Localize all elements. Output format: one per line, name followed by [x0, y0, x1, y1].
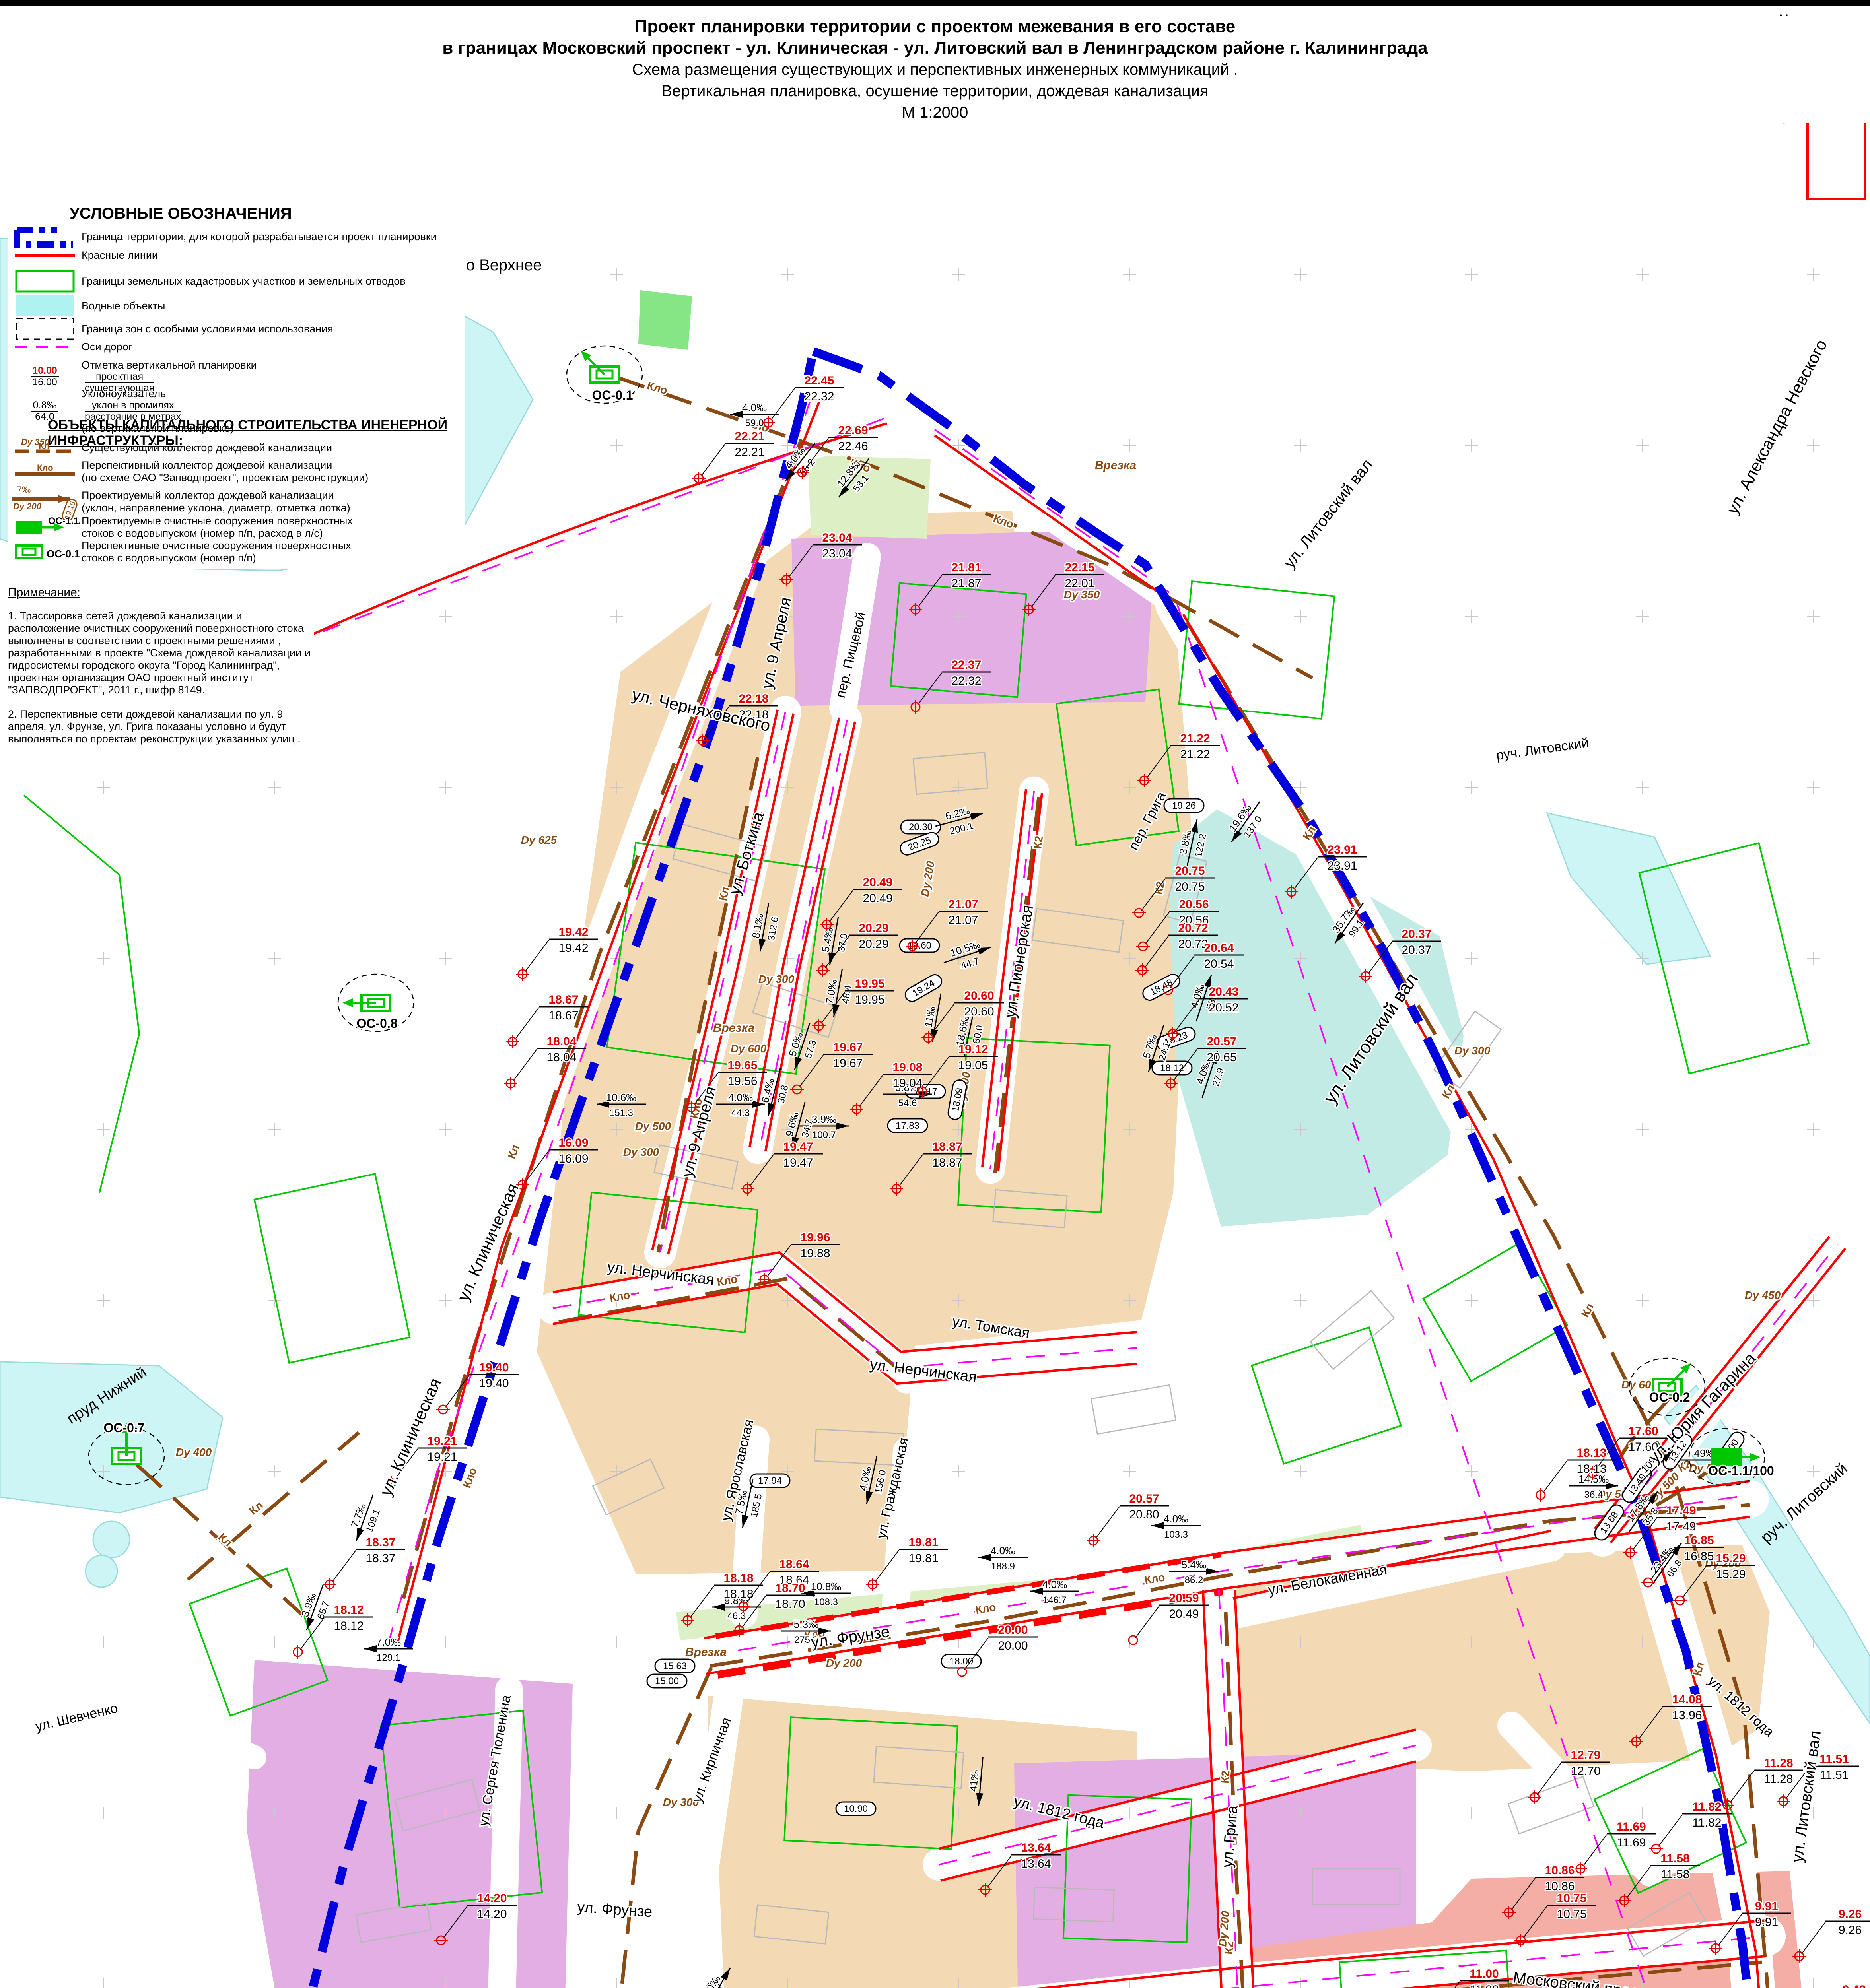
- svg-text:19.42: 19.42: [558, 926, 588, 939]
- svg-text:18.37: 18.37: [365, 1552, 395, 1565]
- svg-text:11.51: 11.51: [1819, 1753, 1849, 1766]
- svg-text:11.69: 11.69: [1617, 1836, 1646, 1849]
- pipe-diameter-label: Dy 300: [1454, 1044, 1491, 1057]
- svg-text:19.26: 19.26: [1172, 800, 1196, 811]
- grid-cross: [610, 439, 623, 452]
- notes-panel: Примечание: 1. Трассировка сетей дождево…: [8, 586, 314, 757]
- title-line-1: Проект планировки территории с проектом …: [0, 16, 1870, 37]
- svg-text:11.82: 11.82: [1692, 1800, 1721, 1813]
- svg-text:13.96: 13.96: [1672, 1709, 1702, 1722]
- svg-text:19.08: 19.08: [892, 1061, 922, 1074]
- svg-text:18.18: 18.18: [723, 1588, 753, 1601]
- perspective-collector-icon: Кло: [8, 464, 82, 479]
- svg-text:22.37: 22.37: [951, 658, 981, 672]
- svg-text:21.22: 21.22: [1180, 732, 1210, 745]
- svg-text:20.57: 20.57: [1207, 1035, 1236, 1048]
- svg-text:17.49: 17.49: [1666, 1520, 1696, 1533]
- svg-text:Dy 200: Dy 200: [13, 501, 42, 511]
- svg-text:41‰: 41‰: [967, 1769, 981, 1792]
- grid-cross: [1123, 268, 1136, 281]
- svg-text:20.29: 20.29: [859, 922, 888, 935]
- grid-cross: [1807, 781, 1820, 794]
- svg-text:21.07: 21.07: [948, 898, 978, 911]
- legend-item-label: Красные линии: [82, 249, 158, 262]
- svg-text:19.21: 19.21: [427, 1435, 457, 1448]
- svg-text:18.13: 18.13: [1576, 1446, 1606, 1460]
- svg-text:11.58: 11.58: [1661, 1868, 1690, 1881]
- mark-top: 10.00: [31, 365, 59, 377]
- svg-text:18.67: 18.67: [548, 993, 578, 1006]
- cadastre-border-icon: [8, 268, 82, 294]
- svg-text:20.49: 20.49: [863, 892, 892, 905]
- grid-cross: [1465, 610, 1478, 623]
- svg-text:13.64: 13.64: [1021, 1857, 1051, 1870]
- svg-text:19.81: 19.81: [908, 1552, 938, 1565]
- lot-elevation-mark: 15.00: [647, 1674, 687, 1688]
- svg-text:11.00: 11.00: [1470, 1983, 1499, 1988]
- grid-cross: [439, 1636, 452, 1648]
- svg-text:20.60: 20.60: [964, 1005, 994, 1018]
- existing-collector-icon: Dy 350Кл: [8, 439, 82, 457]
- svg-text:11.28: 11.28: [1764, 1773, 1793, 1786]
- grid-cross: [1294, 610, 1307, 623]
- grid-cross: [1123, 1465, 1136, 1477]
- svg-text:11.69: 11.69: [1617, 1820, 1646, 1833]
- grid-cross: [1465, 1294, 1478, 1307]
- svg-text:19.47: 19.47: [783, 1140, 813, 1153]
- street-name-label: ул. Фрунзе: [577, 1899, 653, 1920]
- svg-text:18.18: 18.18: [723, 1572, 753, 1585]
- title-line-4: Вертикальная планировка, осушение террит…: [0, 80, 1870, 102]
- pipe-diameter-label: Dy 300: [623, 1146, 659, 1158]
- grid-cross: [1636, 1123, 1649, 1136]
- grid-cross: [1123, 439, 1136, 452]
- svg-text:11.00: 11.00: [1470, 1967, 1499, 1980]
- legend-item-label: Отметка вертикальной планировки: [82, 359, 257, 371]
- sheet-header: Проект планировки территории с проектом …: [0, 16, 1870, 123]
- svg-text:20.72: 20.72: [1178, 938, 1208, 951]
- grid-cross: [1807, 1978, 1820, 1988]
- svg-text:22.01: 22.01: [1065, 577, 1094, 590]
- svg-text:20.59: 20.59: [1169, 1592, 1199, 1605]
- grid-cross: [439, 1294, 452, 1307]
- svg-text:4.0‰: 4.0‰: [991, 1545, 1015, 1557]
- grid-cross: [97, 1123, 110, 1136]
- grid-cross: [1636, 268, 1649, 281]
- street-name-label: ул. Литовский вал: [1788, 1730, 1824, 1864]
- mark-bottom: 16.00: [32, 377, 57, 388]
- grid-cross: [268, 781, 281, 794]
- svg-text:11.28: 11.28: [1764, 1757, 1793, 1770]
- svg-text:19.81: 19.81: [908, 1536, 938, 1549]
- grid-cross: [268, 1123, 281, 1136]
- pipe-diameter-label: Dy 200: [826, 1657, 862, 1669]
- svg-text:18.37: 18.37: [365, 1536, 395, 1549]
- svg-text:19.67: 19.67: [833, 1057, 863, 1070]
- svg-text:4.0‰: 4.0‰: [1164, 1513, 1188, 1525]
- svg-text:10.75: 10.75: [1557, 1908, 1586, 1921]
- svg-text:18.04: 18.04: [546, 1035, 576, 1048]
- svg-text:20.57: 20.57: [1129, 1492, 1159, 1505]
- svg-text:19.67: 19.67: [833, 1041, 863, 1054]
- treatment-facility-label: ОС-0.1: [592, 388, 633, 402]
- legend-header: УСЛОВНЫЕ ОБОЗНАЧЕНИЯ: [70, 205, 292, 223]
- svg-text:9.91: 9.91: [1755, 1900, 1778, 1913]
- svg-text:18.67: 18.67: [548, 1009, 578, 1022]
- infra-item-label: Проектируемые очистные сооружения поверх…: [82, 515, 353, 540]
- grid-cross: [97, 952, 110, 965]
- svg-text:18.87: 18.87: [932, 1156, 962, 1169]
- svg-text:7‰: 7‰: [17, 485, 31, 495]
- svg-text:5.4‰: 5.4‰: [1182, 1559, 1206, 1571]
- svg-text:20.43: 20.43: [1209, 985, 1238, 998]
- svg-text:9.26: 9.26: [1839, 1924, 1862, 1937]
- svg-text:21.87: 21.87: [951, 577, 981, 590]
- svg-text:20.65: 20.65: [1207, 1051, 1236, 1064]
- grid-cross: [1636, 1294, 1649, 1307]
- svg-text:22.32: 22.32: [951, 674, 981, 687]
- slope-frac-top: уклон в промилях: [85, 400, 181, 412]
- svg-text:19.42: 19.42: [558, 942, 588, 955]
- cadastre-line: [24, 795, 139, 1193]
- grid-cross: [1807, 1465, 1820, 1477]
- grid-cross: [439, 952, 452, 965]
- treatment-facility-label: ОС-0.8: [356, 1016, 397, 1031]
- svg-text:19.47: 19.47: [783, 1156, 813, 1169]
- infra-item-label: Существующий коллектор дождевой канализа…: [82, 442, 332, 454]
- connection-label: Врезка: [1095, 459, 1136, 472]
- svg-text:12.79: 12.79: [1571, 1749, 1600, 1762]
- grid-cross: [268, 1465, 281, 1477]
- street-name-label: ул. Александра Невского: [1723, 336, 1831, 517]
- elevation-mark: 9.269.26: [1792, 1908, 1870, 1963]
- svg-text:18.70: 18.70: [775, 1582, 805, 1595]
- svg-text:14.20: 14.20: [477, 1892, 507, 1905]
- svg-text:4.0‰: 4.0‰: [742, 402, 767, 414]
- red-line-icon: [8, 252, 82, 260]
- pond: [86, 1555, 117, 1587]
- grid-cross: [610, 268, 623, 281]
- svg-text:20.49: 20.49: [1169, 1607, 1199, 1621]
- svg-text:18.00: 18.00: [949, 1656, 973, 1667]
- perspective-treatment-icon: ОС-0.1: [8, 541, 82, 563]
- svg-text:20.30: 20.30: [909, 822, 933, 833]
- svg-text:15.63: 15.63: [663, 1661, 687, 1672]
- note-2: 2. Перспективные сети дождевой канализац…: [8, 708, 314, 745]
- svg-text:19.95: 19.95: [855, 993, 884, 1006]
- svg-text:ОС-1.1/100: ОС-1.1/100: [48, 516, 80, 526]
- grid-cross: [97, 1807, 110, 1819]
- svg-text:19.88: 19.88: [800, 1247, 830, 1260]
- svg-text:44.3: 44.3: [731, 1108, 750, 1118]
- svg-text:20.29: 20.29: [859, 938, 888, 951]
- svg-text:19.04: 19.04: [892, 1077, 922, 1090]
- legend-item-label: Границы земельных кадастровых участков и…: [82, 275, 406, 287]
- grid-cross: [439, 781, 452, 794]
- svg-text:21.81: 21.81: [951, 561, 981, 574]
- svg-text:59.0: 59.0: [745, 418, 764, 429]
- grid-cross: [610, 610, 623, 623]
- svg-text:19.40: 19.40: [479, 1361, 509, 1374]
- pipe-diameter-label: Dy 600: [731, 1043, 767, 1055]
- svg-text:10.8‰: 10.8‰: [811, 1580, 842, 1592]
- svg-text:10.86: 10.86: [1545, 1864, 1575, 1877]
- svg-text:18.70: 18.70: [775, 1598, 805, 1611]
- svg-text:9.91: 9.91: [1755, 1916, 1778, 1929]
- grid-cross: [439, 610, 452, 623]
- svg-text:13.64: 13.64: [1021, 1841, 1051, 1854]
- svg-text:20.75: 20.75: [1175, 864, 1205, 878]
- svg-text:18.04: 18.04: [546, 1051, 576, 1064]
- svg-text:16.09: 16.09: [558, 1136, 588, 1149]
- svg-text:22.21: 22.21: [735, 430, 764, 443]
- grid-cross: [97, 1636, 110, 1648]
- lot-elevation-mark: 17.94: [750, 1474, 790, 1487]
- svg-text:86.2: 86.2: [1185, 1575, 1203, 1586]
- note-1: 1. Трассировка сетей дождевой канализаци…: [8, 610, 314, 696]
- svg-text:18.87: 18.87: [932, 1140, 962, 1153]
- svg-text:15.29: 15.29: [1716, 1568, 1746, 1581]
- lot-elevation-mark: 17.83: [888, 1119, 927, 1132]
- svg-text:108.3: 108.3: [814, 1597, 838, 1607]
- water-body: [1547, 813, 1710, 964]
- svg-text:36.4: 36.4: [1584, 1489, 1603, 1500]
- svg-text:19.56: 19.56: [727, 1075, 757, 1088]
- lot-elevation-mark: 15.63: [655, 1659, 695, 1673]
- collector-label: Кл: [216, 1531, 235, 1549]
- svg-text:23.04: 23.04: [822, 531, 852, 544]
- svg-text:Кл: Кл: [39, 441, 49, 451]
- svg-text:14.20: 14.20: [477, 1908, 507, 1921]
- svg-text:20.75: 20.75: [1175, 880, 1205, 893]
- svg-text:19.40: 19.40: [479, 1377, 509, 1390]
- pipe-diameter-label: Dy 625: [521, 834, 557, 846]
- pipe-diameter-label: Dy 500: [635, 1120, 671, 1132]
- designed-treatment-icon: ОС-1.1/100: [8, 516, 82, 538]
- svg-text:19.05: 19.05: [958, 1059, 988, 1072]
- svg-text:7.0‰: 7.0‰: [376, 1636, 401, 1648]
- grid-cross: [1465, 1465, 1478, 1477]
- grid-cross: [1807, 952, 1820, 965]
- svg-text:20.37: 20.37: [1402, 928, 1431, 941]
- drawing-sheet: КлоКлоКлоКлоКлКлоКлоКлоКлоКлоКлоКлКлКлКл…: [0, 0, 1870, 1988]
- grid-cross: [1807, 268, 1820, 281]
- cadastre-parcel: [255, 1174, 410, 1363]
- svg-text:20.49: 20.49: [863, 876, 892, 889]
- designed-collector-icon: 7‰ Dy 200 19.16: [8, 484, 82, 520]
- svg-text:20.80: 20.80: [1129, 1508, 1159, 1521]
- grid-cross: [952, 1465, 965, 1477]
- svg-text:23.04: 23.04: [822, 547, 852, 560]
- title-line-2: в границах Московский проспект - ул. Кли…: [0, 37, 1870, 59]
- slope-indicator: 4.0‰188.9: [978, 1545, 1028, 1572]
- legend-item-label: Уклоноуказатель: [82, 388, 166, 400]
- grid-cross: [610, 1807, 623, 1819]
- svg-text:22.18: 22.18: [739, 692, 768, 705]
- svg-text:19.96: 19.96: [800, 1231, 830, 1244]
- svg-text:17.60: 17.60: [1628, 1425, 1658, 1438]
- grid-cross: [97, 1978, 110, 1988]
- special-zone-border-icon: [8, 316, 82, 342]
- slope-sample-top: 0.8‰: [31, 400, 58, 412]
- cadastre-parcel: [1252, 1327, 1401, 1464]
- svg-text:103.3: 103.3: [1164, 1529, 1188, 1540]
- svg-text:18.64: 18.64: [779, 1558, 809, 1571]
- slope-indicator: 3.9‰65.7: [295, 1580, 337, 1635]
- infra-item-label: Перспективные очистные сооружения поверх…: [82, 540, 351, 564]
- svg-text:151.3: 151.3: [609, 1108, 633, 1118]
- infra-item-label: Перспективный коллектор дождевой канализ…: [82, 459, 368, 484]
- svg-text:9.42: 9.42: [1843, 1983, 1866, 1988]
- svg-text:16.09: 16.09: [558, 1152, 588, 1165]
- svg-text:19.95: 19.95: [855, 977, 884, 990]
- svg-text:18.12: 18.12: [334, 1604, 364, 1617]
- svg-text:18.13: 18.13: [1576, 1462, 1606, 1475]
- building-footprint: [1091, 1385, 1176, 1434]
- pipe-diameter-label: Dy 350: [1064, 588, 1100, 601]
- collector-label: Кло: [646, 379, 669, 397]
- lot-elevation-mark: 10.90: [836, 1802, 876, 1815]
- svg-text:11.82: 11.82: [1693, 1816, 1722, 1829]
- zone-violet: [247, 1660, 573, 1988]
- svg-text:3.9‰: 3.9‰: [812, 1113, 836, 1125]
- pipe-diameter-label: Dy 300: [758, 973, 795, 985]
- grid-cross: [268, 1636, 281, 1648]
- lot-elevation-mark: 19.26: [1164, 799, 1204, 812]
- svg-text:22.15: 22.15: [1065, 561, 1094, 574]
- lot-elevation-mark: 18.12: [1152, 1061, 1192, 1075]
- svg-text:15.00: 15.00: [655, 1676, 679, 1687]
- lot-elevation-mark: 19.60: [900, 939, 939, 952]
- svg-text:20.00: 20.00: [998, 1639, 1028, 1652]
- grid-cross: [1294, 1465, 1307, 1477]
- svg-text:188.9: 188.9: [991, 1561, 1015, 1572]
- svg-text:18.12: 18.12: [334, 1619, 364, 1633]
- svg-text:21.07: 21.07: [948, 914, 978, 927]
- svg-text:20.54: 20.54: [1204, 957, 1234, 971]
- svg-text:23.91: 23.91: [1327, 859, 1357, 872]
- grid-cross: [1636, 781, 1649, 794]
- svg-text:20.64: 20.64: [1204, 942, 1234, 955]
- street-corridor: [78, 1682, 255, 1757]
- grid-cross: [97, 1294, 110, 1307]
- legend-item-label: Водные объекты: [82, 300, 165, 312]
- elevation-mark: 20.5720.80: [1087, 1492, 1169, 1547]
- svg-text:23.91: 23.91: [1327, 843, 1357, 856]
- collector-label: К2: [1219, 1770, 1232, 1784]
- street-name-label: ул. Шевченко: [34, 1701, 119, 1734]
- svg-text:20.00: 20.00: [998, 1623, 1028, 1637]
- building-footprint: [1310, 1291, 1394, 1369]
- collector-label: Кл: [247, 1499, 266, 1517]
- svg-text:21.22: 21.22: [1180, 748, 1210, 761]
- svg-text:146.7: 146.7: [1043, 1595, 1067, 1606]
- svg-text:129.1: 129.1: [377, 1652, 400, 1663]
- svg-text:20.72: 20.72: [1178, 922, 1208, 935]
- grid-cross: [1807, 1123, 1820, 1136]
- svg-text:ОС-0.1: ОС-0.1: [47, 548, 80, 560]
- grid-cross: [439, 1123, 452, 1136]
- grid-cross: [610, 1636, 623, 1648]
- grid-cross: [1636, 1807, 1649, 1819]
- svg-text:22.46: 22.46: [838, 440, 868, 453]
- legend-item-label: Оси дорог: [82, 341, 132, 353]
- svg-text:17.83: 17.83: [896, 1120, 919, 1131]
- lot-elevation-mark: 20.30: [901, 820, 941, 834]
- road-axis-icon: [8, 343, 82, 351]
- grid-cross: [97, 781, 110, 794]
- svg-text:12.70: 12.70: [1571, 1765, 1600, 1778]
- pipe-diameter-label: Dy 400: [176, 1446, 212, 1458]
- svg-text:Кло: Кло: [37, 464, 53, 473]
- grid-cross: [1465, 781, 1478, 794]
- grid-cross: [1807, 610, 1820, 623]
- lot-elevation-mark: 18.00: [941, 1654, 981, 1668]
- svg-text:16.85: 16.85: [1684, 1550, 1714, 1563]
- street-name-label: ул. Литовский вал: [1281, 456, 1376, 571]
- grid-cross: [1294, 1294, 1307, 1307]
- svg-text:10.6‰: 10.6‰: [606, 1091, 637, 1103]
- svg-text:20.37: 20.37: [1402, 944, 1431, 957]
- title-line-3: Схема размещения существующих и перспект…: [0, 59, 1870, 80]
- svg-text:20.56: 20.56: [1179, 898, 1209, 911]
- grid-cross: [1465, 1807, 1478, 1819]
- grid-cross: [1294, 439, 1307, 452]
- grid-cross: [1465, 268, 1478, 281]
- svg-text:10.86: 10.86: [1545, 1880, 1575, 1893]
- svg-text:4.0‰: 4.0‰: [728, 1091, 753, 1103]
- grid-cross: [1294, 268, 1307, 281]
- grid-cross: [268, 952, 281, 965]
- legend-panel: УСЛОВНЫЕ ОБОЗНАЧЕНИЯ Граница территории,…: [8, 197, 465, 569]
- grid-cross: [1465, 952, 1478, 965]
- svg-text:22.32: 22.32: [804, 390, 834, 403]
- svg-text:11.51: 11.51: [1820, 1769, 1849, 1782]
- svg-text:11.58: 11.58: [1660, 1852, 1689, 1865]
- pipe-diameter-label: Dy 450: [1745, 1289, 1781, 1301]
- water-fill-icon: [8, 293, 82, 318]
- zone-gfill: [638, 290, 692, 350]
- svg-text:10.90: 10.90: [844, 1804, 868, 1814]
- svg-text:19.21: 19.21: [427, 1450, 457, 1464]
- collector-label: К2: [1031, 835, 1045, 850]
- svg-text:20.60: 20.60: [964, 989, 994, 1002]
- svg-text:14.08: 14.08: [1672, 1693, 1702, 1706]
- svg-text:9.26: 9.26: [1839, 1908, 1862, 1921]
- treatment-facility-label: ОС-0.2: [1649, 1390, 1690, 1404]
- svg-text:10.75: 10.75: [1557, 1892, 1586, 1905]
- mark-frac-top: проектная: [85, 371, 154, 383]
- svg-text:20.52: 20.52: [1209, 1001, 1238, 1014]
- elevation-mark-icon: 10.0016.00: [8, 365, 82, 388]
- svg-text:17.49: 17.49: [1666, 1504, 1696, 1517]
- legend-item-label: Граница территории, для которой разрабат…: [82, 231, 437, 243]
- svg-text:5.3‰: 5.3‰: [794, 1618, 818, 1630]
- svg-text:19.65: 19.65: [727, 1059, 757, 1072]
- grid-cross: [781, 268, 794, 281]
- treatment-facility-label: ОС-1.1/100: [1708, 1464, 1774, 1478]
- grid-cross: [952, 268, 965, 281]
- infra-item-label: Проектируемый коллектор дождевой канализ…: [82, 489, 350, 514]
- svg-text:22.69: 22.69: [838, 424, 868, 437]
- grid-cross: [1636, 610, 1649, 623]
- svg-text:19.12: 19.12: [958, 1043, 988, 1056]
- notes-header: Примечание:: [8, 586, 314, 599]
- water-name-label: руч. Литовский: [1495, 735, 1590, 763]
- connection-label: Врезка: [713, 1021, 754, 1035]
- svg-text:22.21: 22.21: [735, 446, 764, 459]
- treatment-facility-label: ОС-0.7: [103, 1421, 144, 1435]
